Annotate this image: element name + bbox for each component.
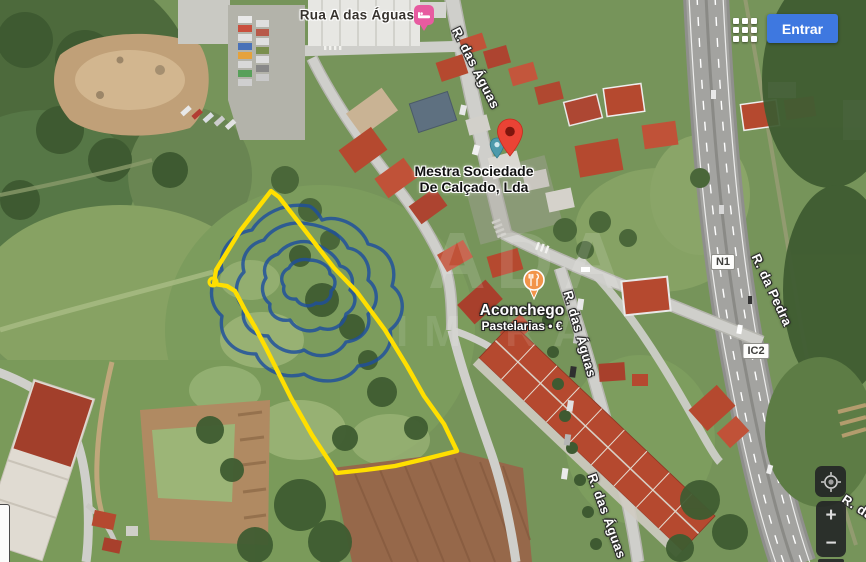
poi-label-mestra-line2: De Calçado, Lda bbox=[414, 179, 533, 195]
poi-label-aconchego[interactable]: Aconchego Pastelarias • € bbox=[480, 302, 564, 333]
apps-grid-dot bbox=[733, 18, 739, 24]
route-badge-ic2: IC2 bbox=[742, 343, 769, 359]
apps-grid-dot bbox=[733, 36, 739, 42]
sign-in-button[interactable]: Entrar bbox=[767, 14, 838, 43]
apps-grid-dot bbox=[742, 27, 748, 33]
restaurant-pin-icon[interactable] bbox=[522, 269, 546, 300]
satellite-imagery: ADA IM RA bbox=[0, 0, 866, 562]
apps-grid-dot bbox=[751, 18, 757, 24]
map-canvas[interactable]: ADA IM RA Rua A das Águas R. das Águas R… bbox=[0, 0, 866, 562]
my-location-icon bbox=[818, 469, 844, 495]
apps-grid-dot bbox=[742, 18, 748, 24]
place-pin-icon[interactable] bbox=[496, 118, 524, 158]
my-location-button[interactable] bbox=[815, 466, 846, 497]
poi-label-mestra-line1: Mestra Sociedade bbox=[414, 163, 533, 179]
apps-grid-dot bbox=[742, 36, 748, 42]
lodging-pin-icon[interactable] bbox=[413, 4, 435, 32]
apps-grid-dot bbox=[751, 27, 757, 33]
watermark-text: ADA IM RA bbox=[396, 216, 631, 356]
apps-grid-dot bbox=[751, 36, 757, 42]
poi-label-aconchego-name: Aconchego bbox=[480, 302, 564, 319]
apps-grid-icon[interactable] bbox=[733, 18, 757, 42]
card-edge bbox=[0, 504, 10, 562]
zoom-control[interactable]: + − bbox=[816, 501, 846, 557]
route-badge-n1: N1 bbox=[711, 254, 735, 270]
poi-label-mestra[interactable]: Mestra Sociedade De Calçado, Lda bbox=[414, 163, 533, 195]
zoom-in-button[interactable]: + bbox=[816, 501, 846, 529]
apps-grid-dot bbox=[733, 27, 739, 33]
zoom-out-button[interactable]: − bbox=[816, 529, 846, 557]
poi-label-aconchego-sub: Pastelarias • € bbox=[480, 319, 564, 333]
